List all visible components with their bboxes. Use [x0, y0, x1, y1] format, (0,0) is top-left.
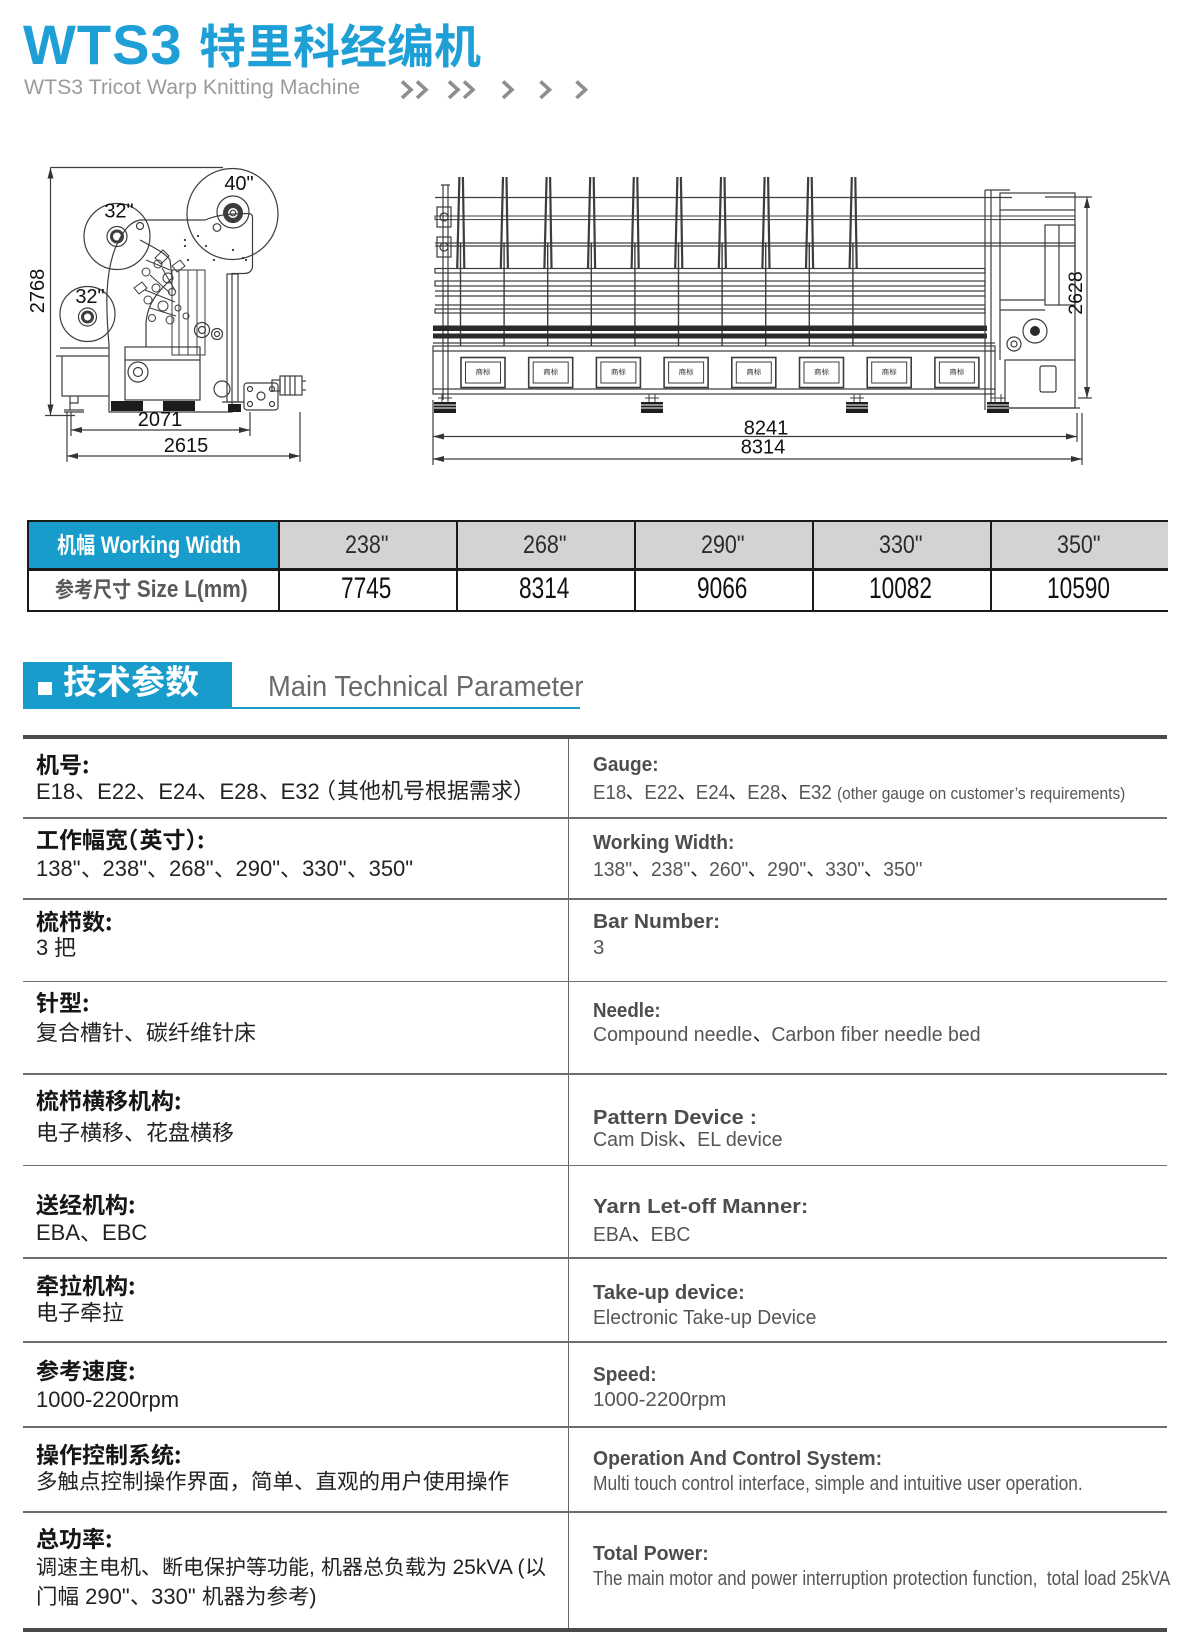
svg-text:2628: 2628: [1065, 271, 1087, 314]
svg-text:40": 40": [224, 173, 253, 195]
svg-text:2071: 2071: [138, 409, 183, 431]
svg-text:32": 32": [104, 201, 133, 223]
svg-text:2615: 2615: [164, 435, 209, 457]
svg-text:2768: 2768: [27, 269, 49, 314]
svg-text:32": 32": [75, 286, 104, 308]
svg-text:8314: 8314: [741, 437, 786, 459]
